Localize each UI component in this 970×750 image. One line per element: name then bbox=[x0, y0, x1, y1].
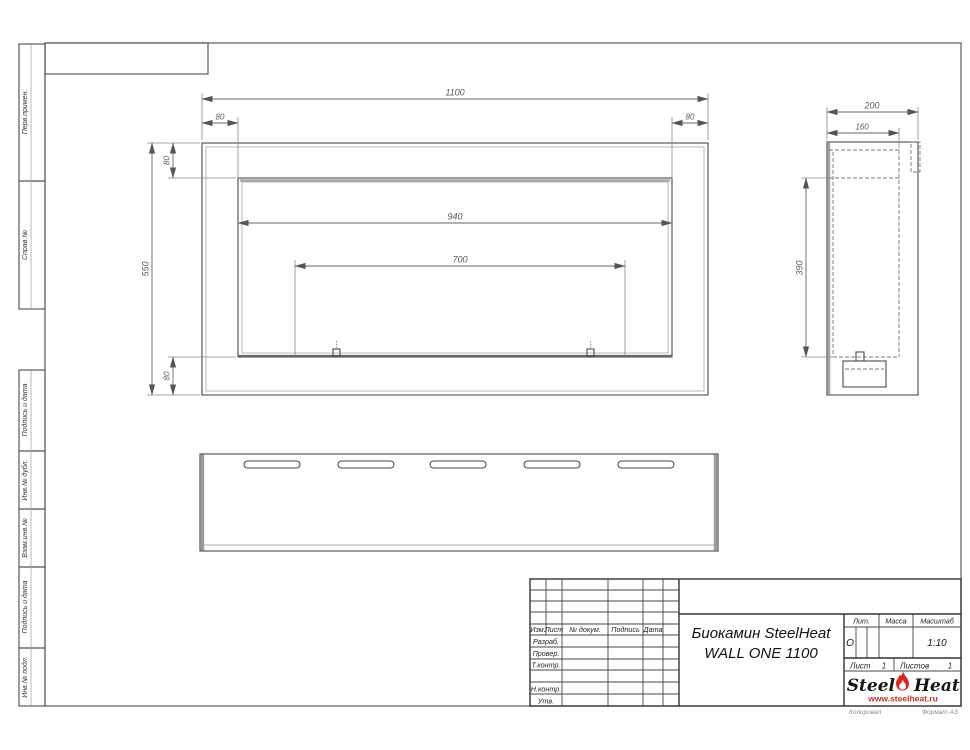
scale-value: 1:10 bbox=[927, 638, 947, 649]
dim-label: 390 bbox=[795, 260, 805, 275]
wall-bracket bbox=[911, 142, 920, 172]
top-view-left-edge bbox=[201, 455, 204, 551]
product-name-line1: Биокамин SteelHeat bbox=[692, 625, 832, 642]
dim-front-right-inset: 80 bbox=[672, 113, 708, 179]
dim-label: 80 bbox=[216, 113, 225, 122]
drawing-sheet: Перв.примен. Справ.№ Подпись и дата Инв.… bbox=[0, 0, 970, 750]
dim-label: 80 bbox=[163, 156, 172, 165]
top-view bbox=[200, 454, 718, 551]
dim-front-total-width: 1100 bbox=[202, 88, 708, 141]
side-view bbox=[827, 142, 920, 395]
title-block: Изм. Лист № докум. Подпись Дата Разраб. … bbox=[530, 579, 961, 706]
sheets-total-number: 1 bbox=[948, 662, 952, 671]
dim-label: 200 bbox=[863, 101, 879, 111]
lit-header: Лит. bbox=[852, 617, 870, 626]
frame-footer: Копировал Формат А3 bbox=[849, 709, 958, 716]
litera-value: О bbox=[846, 638, 854, 649]
burner-tray bbox=[843, 361, 886, 387]
vent-slot bbox=[244, 461, 300, 468]
margin-label-podpis-data-1: Подпись и дата bbox=[21, 383, 29, 436]
dim-front-left-inset: 80 bbox=[202, 113, 238, 179]
logo-website: www.steelheat.ru bbox=[867, 694, 938, 704]
role-prover: Провер. bbox=[533, 649, 560, 658]
role-tkontr: Т.контр. bbox=[532, 661, 561, 670]
dim-label: 1100 bbox=[445, 88, 464, 98]
dim-label: 80 bbox=[163, 371, 172, 380]
front-view bbox=[202, 143, 708, 395]
dim-front-opening-width: 940 bbox=[238, 212, 672, 224]
sheet-number: 1 bbox=[882, 662, 886, 671]
front-opening bbox=[238, 178, 672, 357]
dim-label: 550 bbox=[141, 261, 151, 276]
margin-label-sprav-no: Справ.№ bbox=[22, 230, 29, 260]
top-view-right-edge bbox=[714, 455, 717, 551]
designation-stamp-box bbox=[45, 43, 208, 74]
vent-slot bbox=[618, 461, 674, 468]
margin-label-vzam-inv: Взам.инв.№ bbox=[22, 518, 29, 558]
margin-label-inv-dubl: Инв.№ дубл. bbox=[21, 459, 29, 500]
rev-col-date: Дата bbox=[643, 625, 663, 634]
dim-label: 80 bbox=[686, 113, 695, 122]
margin-label-podpis-data-2: Подпись и дата bbox=[21, 580, 29, 633]
dim-side-depth: 200 bbox=[827, 101, 918, 141]
format-label: Формат А3 bbox=[922, 709, 958, 716]
mass-header: Масса bbox=[885, 617, 906, 626]
margin-label-perv-primen: Перв.примен. bbox=[22, 90, 29, 135]
flame-icon bbox=[896, 671, 909, 691]
blueprint-canvas: Перв.примен. Справ.№ Подпись и дата Инв.… bbox=[0, 0, 970, 750]
sheet-label: Лист bbox=[849, 662, 871, 671]
dim-label: 940 bbox=[447, 212, 462, 222]
rev-col-list: Лист bbox=[544, 625, 564, 634]
rev-col-izm: Изм. bbox=[530, 625, 545, 634]
role-nkontr: Н.контр. bbox=[531, 685, 561, 694]
left-margin-stamps: Перв.примен. Справ.№ Подпись и дата Инв.… bbox=[19, 44, 45, 706]
vent-slot bbox=[430, 461, 486, 468]
copied-by-label: Копировал bbox=[849, 709, 882, 716]
rev-col-docnum: № докум. bbox=[569, 625, 601, 634]
dim-front-top-inset: 80 bbox=[163, 143, 237, 178]
product-name-line2: WALL ONE 1100 bbox=[704, 645, 818, 662]
sheets-total-label: Листов bbox=[899, 662, 929, 671]
dim-side-inner-depth: 160 bbox=[827, 123, 899, 149]
rev-col-signature: Подпись bbox=[611, 625, 640, 634]
vent-slot bbox=[338, 461, 394, 468]
dim-label: 700 bbox=[452, 255, 467, 265]
steelheat-logo: Steel Heat www.steelheat.ru bbox=[847, 671, 960, 704]
scale-header: Масштаб bbox=[920, 617, 955, 626]
role-utv: Утв. bbox=[537, 697, 554, 706]
burner-tray-clip bbox=[856, 352, 864, 361]
margin-label-inv-podl: Инв.№ подл. bbox=[21, 656, 29, 698]
dim-front-bottom-inset: 80 bbox=[163, 357, 237, 395]
dim-front-burner-span: 700 bbox=[295, 255, 625, 356]
dim-label: 160 bbox=[855, 123, 869, 132]
role-razrab: Разраб. bbox=[533, 637, 559, 646]
vent-slot bbox=[524, 461, 580, 468]
